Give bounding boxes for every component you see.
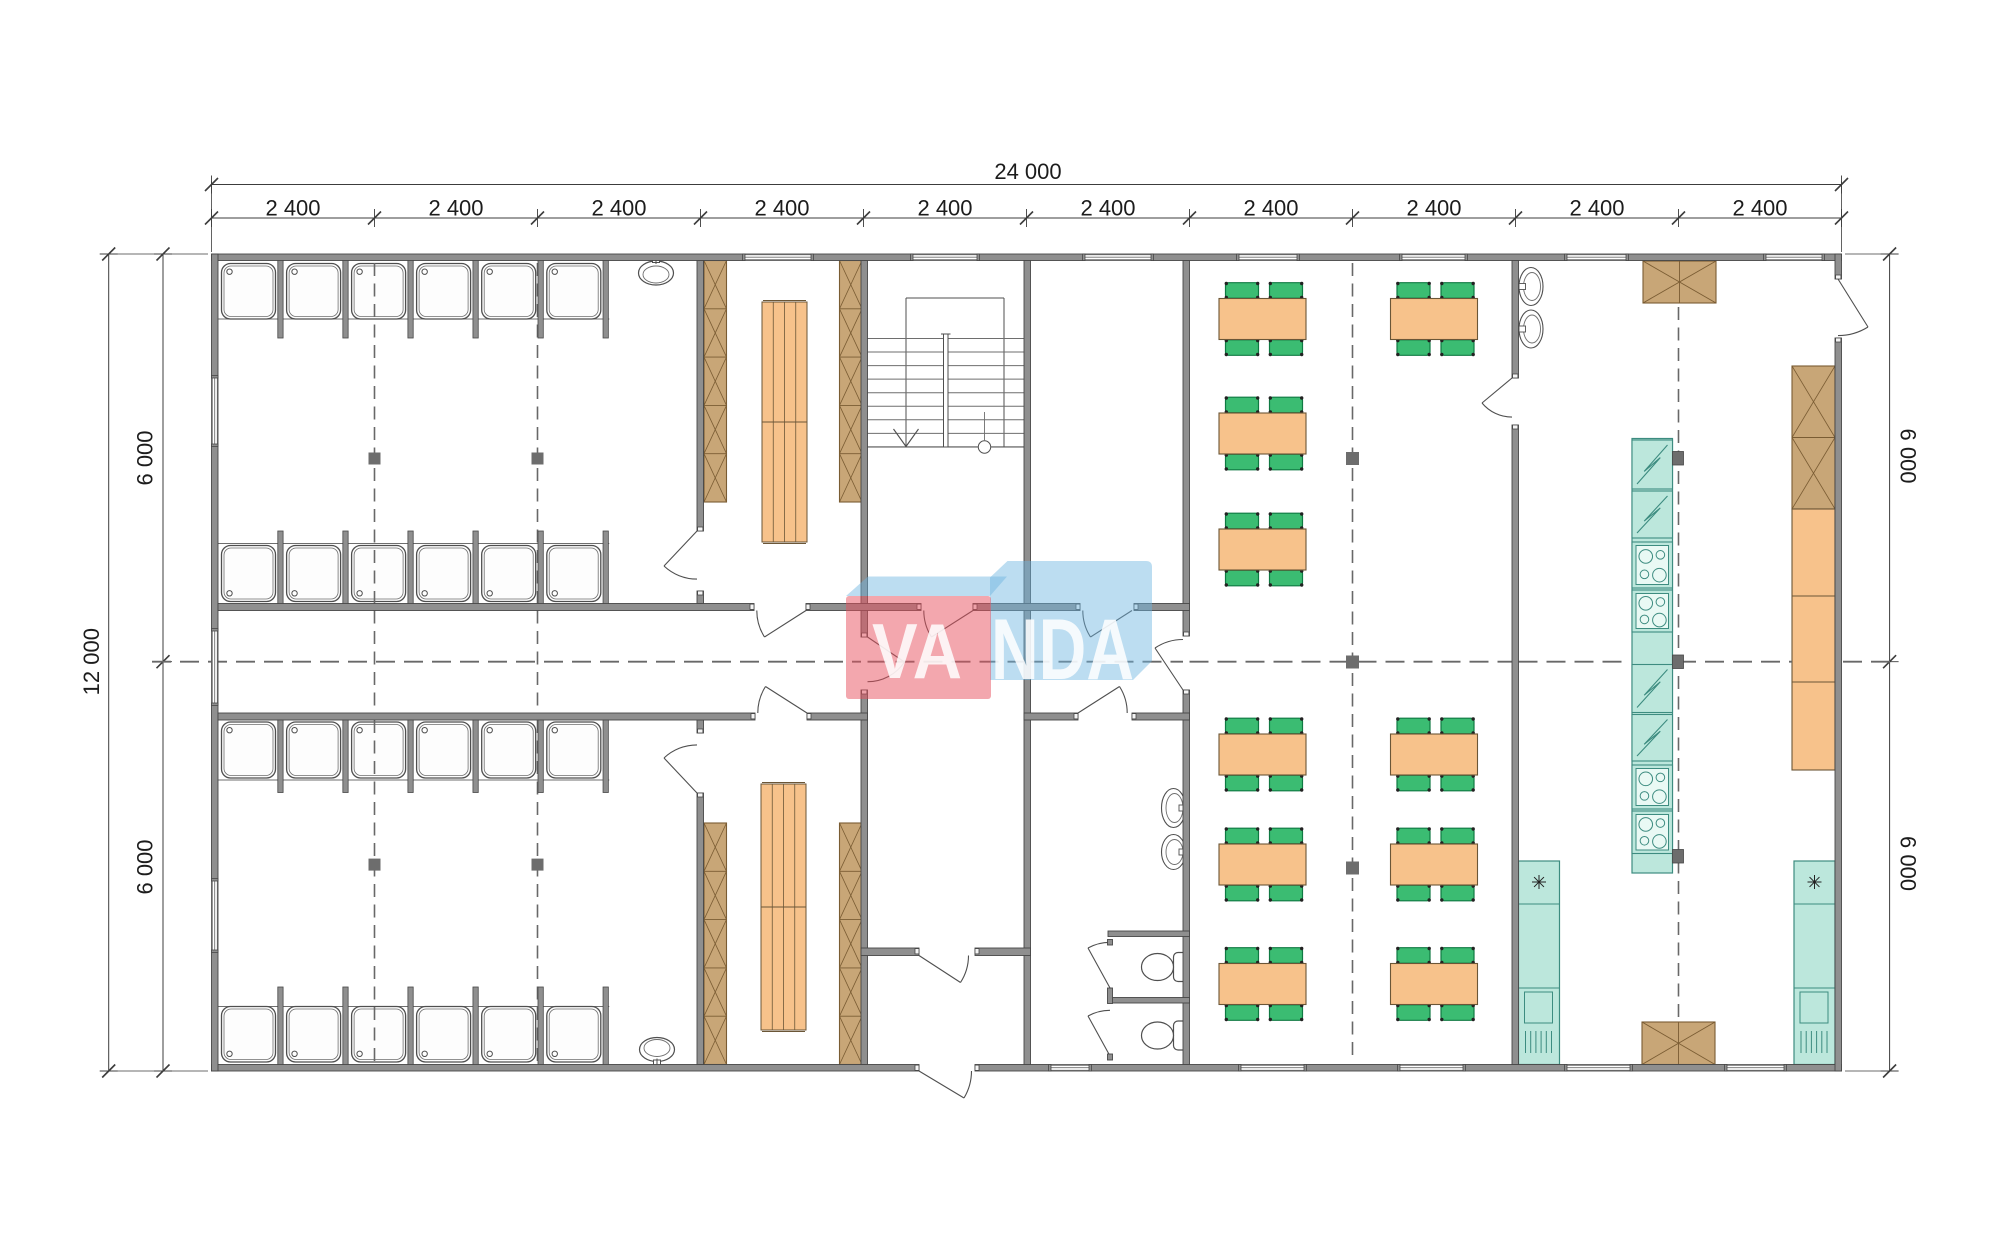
svg-text:2 400: 2 400	[1569, 196, 1624, 221]
svg-text:2 400: 2 400	[1732, 196, 1787, 221]
svg-text:24 000: 24 000	[994, 159, 1061, 184]
svg-text:2 400: 2 400	[917, 196, 972, 221]
svg-text:6 000: 6 000	[133, 839, 158, 894]
svg-text:6 000: 6 000	[133, 430, 158, 485]
svg-text:VA: VA	[872, 607, 962, 695]
svg-text:6 000: 6 000	[1896, 428, 1921, 483]
svg-text:2 400: 2 400	[1080, 196, 1135, 221]
svg-text:2 400: 2 400	[265, 196, 320, 221]
svg-text:2 400: 2 400	[1406, 196, 1461, 221]
svg-text:2 400: 2 400	[591, 196, 646, 221]
svg-text:NDA: NDA	[991, 602, 1134, 698]
svg-text:6 000: 6 000	[1896, 836, 1921, 891]
svg-text:2 400: 2 400	[754, 196, 809, 221]
svg-text:12 000: 12 000	[79, 628, 104, 695]
svg-text:2 400: 2 400	[1243, 196, 1298, 221]
svg-text:2 400: 2 400	[428, 196, 483, 221]
